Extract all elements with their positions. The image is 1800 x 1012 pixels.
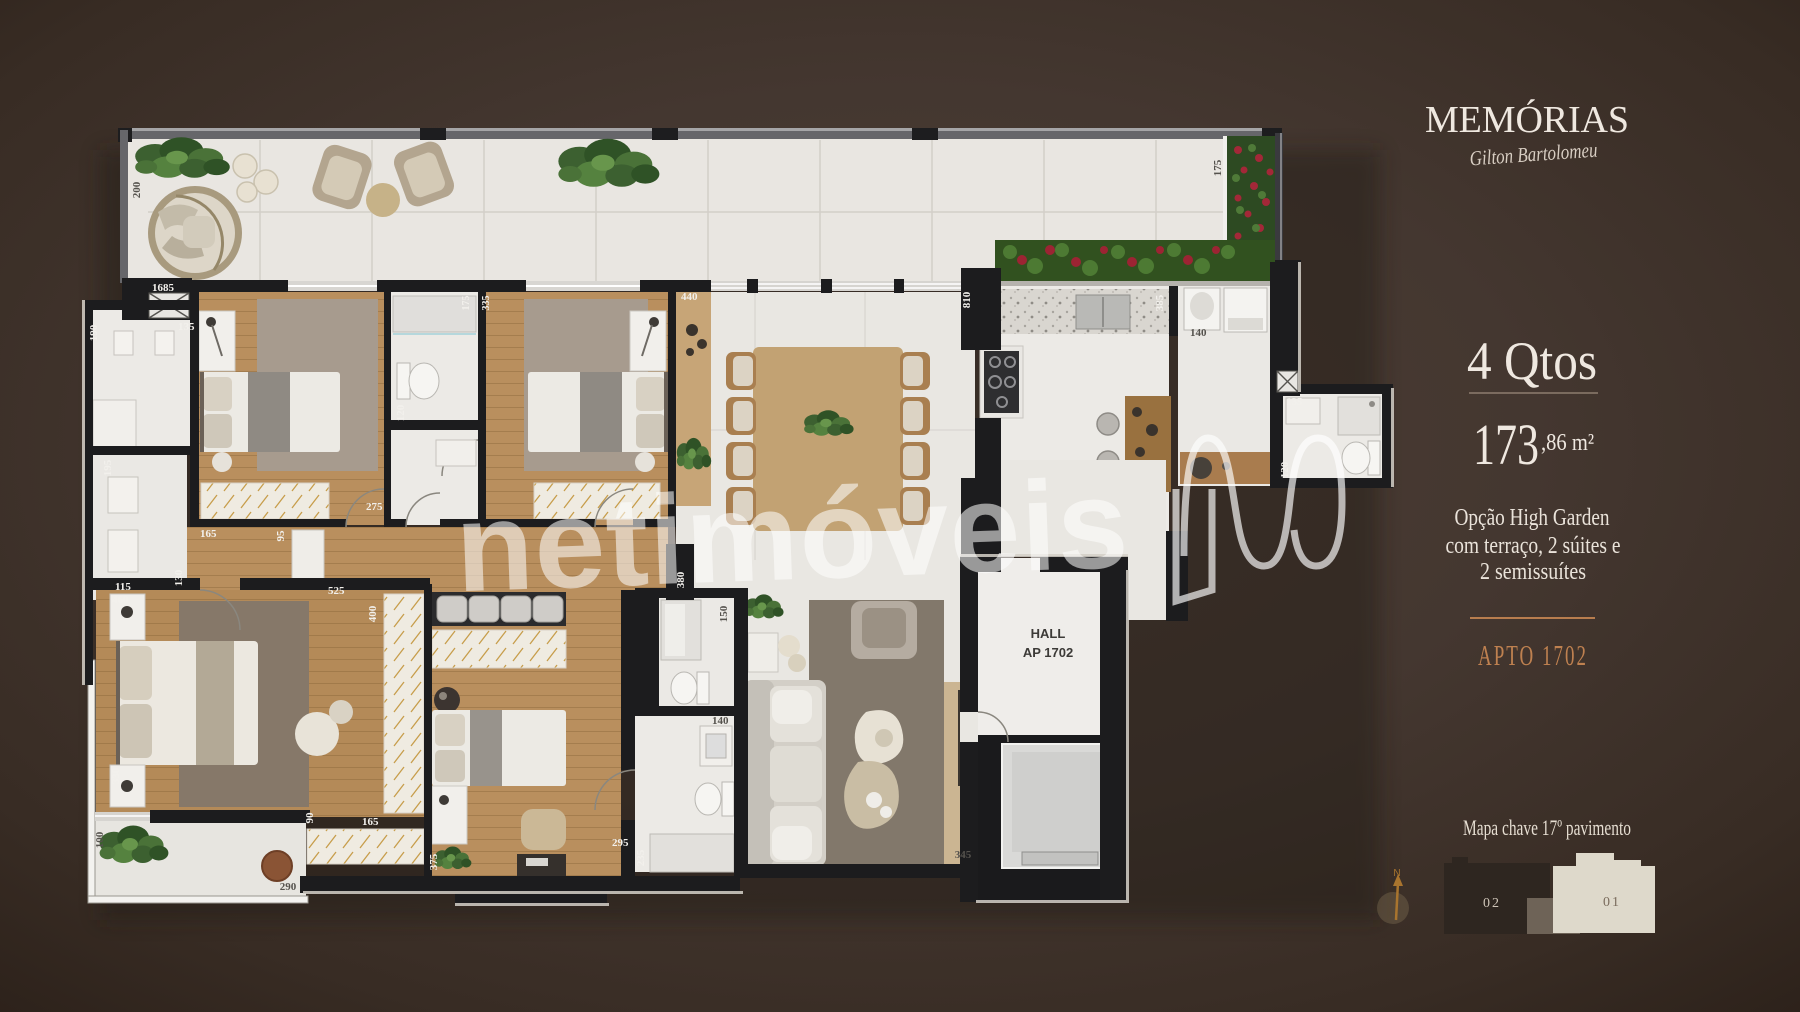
svg-text:120: 120 <box>1279 461 1291 478</box>
svg-text:400: 400 <box>367 605 379 622</box>
svg-text:460: 460 <box>112 594 129 606</box>
svg-text:1685: 1685 <box>152 282 175 294</box>
svg-text:115: 115 <box>115 581 131 593</box>
svg-text:100: 100 <box>94 831 106 848</box>
svg-text:01: 01 <box>1603 895 1621 910</box>
svg-text:MEMÓRIAS: MEMÓRIAS <box>1425 99 1643 141</box>
svg-text:195: 195 <box>102 459 114 476</box>
svg-text:345: 345 <box>955 849 972 861</box>
svg-text:,86 m²: ,86 m² <box>1541 430 1594 456</box>
svg-text:com terraço, 2 súites e: com terraço, 2 súites e <box>1446 533 1621 559</box>
svg-text:02: 02 <box>1483 896 1501 911</box>
svg-text:175: 175 <box>1212 159 1224 176</box>
svg-text:200: 200 <box>131 181 143 198</box>
svg-text:4 Qtos: 4 Qtos <box>1467 331 1597 391</box>
svg-text:173: 173 <box>1473 412 1539 477</box>
svg-text:N: N <box>1393 868 1400 879</box>
svg-text:385: 385 <box>1154 294 1166 311</box>
svg-text:375: 375 <box>428 853 440 870</box>
svg-text:165: 165 <box>362 816 379 828</box>
svg-text:440: 440 <box>681 291 698 303</box>
svg-text:135: 135 <box>1286 396 1303 408</box>
svg-text:Opção High Garden: Opção High Garden <box>1455 505 1610 531</box>
svg-text:525: 525 <box>328 585 345 597</box>
svg-text:295: 295 <box>612 837 629 849</box>
svg-text:95: 95 <box>275 530 287 542</box>
svg-text:140: 140 <box>712 715 729 727</box>
svg-text:235: 235 <box>635 849 647 866</box>
svg-text:130: 130 <box>173 569 185 586</box>
svg-text:Mapa chave 17º pavimento: Mapa chave 17º pavimento <box>1463 815 1631 840</box>
svg-text:810: 810 <box>961 291 973 308</box>
svg-text:290: 290 <box>280 881 297 893</box>
svg-text:2 semissuítes: 2 semissuítes <box>1480 559 1586 585</box>
svg-text:335: 335 <box>481 296 492 311</box>
svg-text:275: 275 <box>366 501 383 513</box>
svg-text:135: 135 <box>178 321 195 333</box>
svg-text:APTO 1702: APTO 1702 <box>1478 641 1588 672</box>
svg-text:HALL: HALL <box>1031 626 1066 641</box>
svg-text:175: 175 <box>461 296 472 311</box>
svg-text:netimóveis: netimóveis <box>453 452 1131 619</box>
svg-text:165: 165 <box>200 528 217 540</box>
svg-text:120: 120 <box>395 404 407 421</box>
svg-text:AP 1702: AP 1702 <box>1023 645 1073 660</box>
svg-text:330: 330 <box>110 767 122 784</box>
svg-text:140: 140 <box>1190 327 1207 339</box>
svg-text:90: 90 <box>304 812 316 824</box>
svg-text:190: 190 <box>88 324 100 341</box>
